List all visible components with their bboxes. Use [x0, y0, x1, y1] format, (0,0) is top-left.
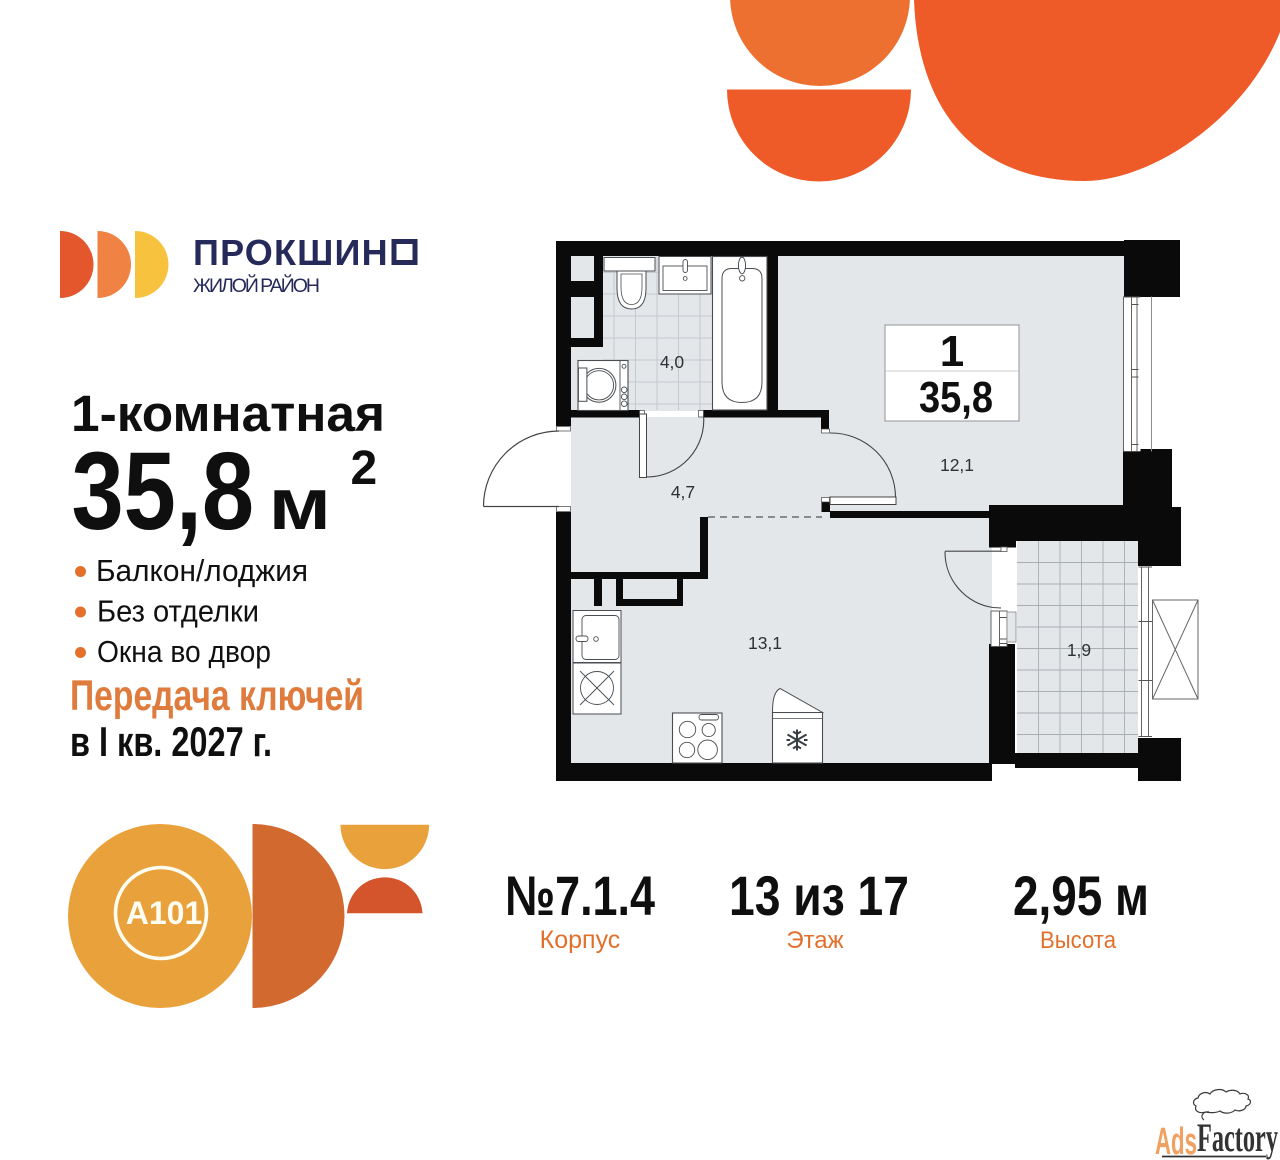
svg-text:ЖИЛОЙ РАЙОН: ЖИЛОЙ РАЙОН: [193, 273, 321, 297]
svg-text:Окна во двор: Окна во двор: [97, 634, 271, 669]
svg-text:13,1: 13,1: [748, 633, 782, 653]
svg-text:Ads: Ads: [1155, 1121, 1197, 1160]
svg-text:Этаж: Этаж: [786, 927, 843, 954]
svg-text:№7.1.4: №7.1.4: [505, 864, 655, 927]
svg-text:12,1: 12,1: [940, 455, 974, 475]
svg-text:1: 1: [940, 327, 964, 376]
svg-text:2,95 м: 2,95 м: [1013, 864, 1149, 927]
svg-text:ПРОКШИН: ПРОКШИН: [193, 232, 389, 273]
svg-text:4,7: 4,7: [671, 482, 695, 502]
svg-text:2: 2: [351, 442, 378, 495]
svg-text:Корпус: Корпус: [540, 926, 621, 954]
svg-text:м: м: [269, 463, 332, 545]
svg-text:A101: A101: [126, 895, 203, 931]
svg-text:в I кв. 2027 г.: в I кв. 2027 г.: [70, 718, 272, 765]
svg-text:Передача ключей: Передача ключей: [70, 672, 364, 720]
svg-text:Высота: Высота: [1040, 927, 1117, 954]
svg-text:1,9: 1,9: [1067, 640, 1091, 660]
svg-text:Без отделки: Без отделки: [97, 594, 259, 629]
svg-text:35,8: 35,8: [72, 429, 255, 553]
svg-text:Балкон/лоджия: Балкон/лоджия: [96, 553, 308, 588]
svg-text:4,0: 4,0: [660, 352, 685, 372]
svg-text:13 из 17: 13 из 17: [729, 864, 909, 927]
svg-text:Factory: Factory: [1197, 1115, 1278, 1160]
svg-text:35,8: 35,8: [919, 373, 993, 422]
